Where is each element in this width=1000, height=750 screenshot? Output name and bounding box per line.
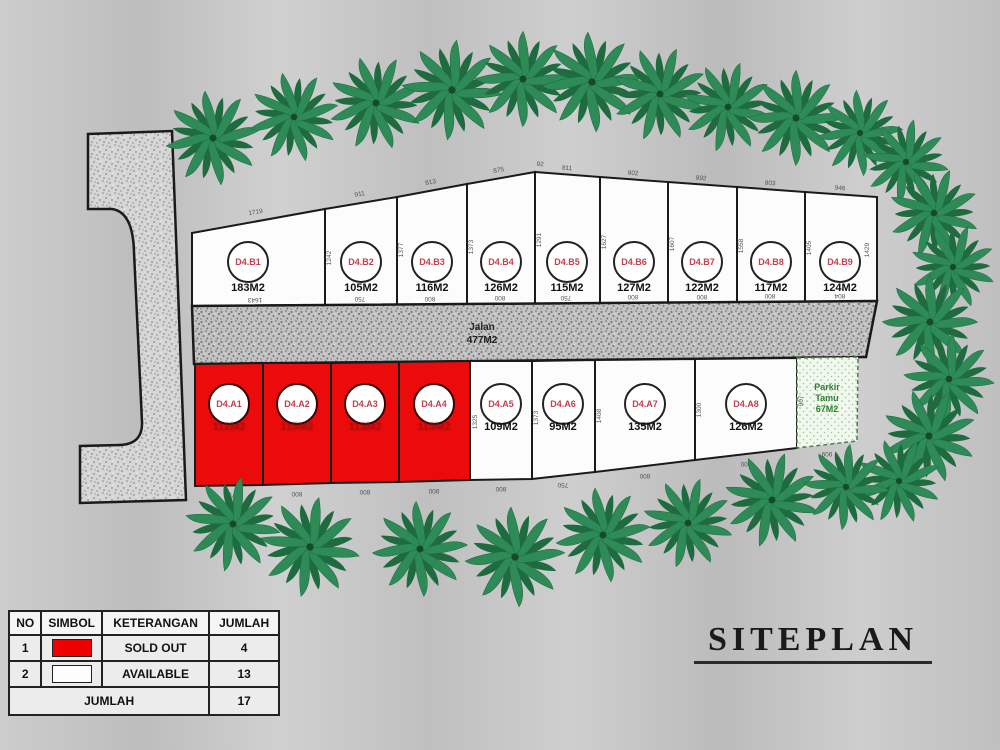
legend-header-jumlah: JUMLAH <box>209 611 279 635</box>
concrete-wall-shape <box>80 131 186 503</box>
available-color-swatch <box>52 665 92 683</box>
dimension-label: 800 <box>639 472 650 479</box>
road-label: Jalan <box>469 322 495 333</box>
parking-label-line2: Tamu <box>815 393 838 403</box>
plot-id: D4.B3 <box>419 257 445 267</box>
plot-d4b3: D4.B3 116M2 <box>397 184 467 305</box>
palm-tree-icon <box>794 435 898 539</box>
plot-d4b8: D4.B8 117M2 <box>737 187 805 302</box>
dimension-label: 813 <box>425 178 437 187</box>
palm-tree-icon <box>712 440 832 560</box>
dimension-label: 1607 <box>669 236 676 251</box>
plot-id: D4.B4 <box>488 257 514 267</box>
dimension-label: 800 <box>291 490 302 497</box>
plot-area: 113M2 <box>417 421 450 433</box>
plot-area: 127M2 <box>617 282 651 294</box>
dimension-label: 1408 <box>596 408 603 423</box>
plot-area: 116M2 <box>415 282 448 294</box>
plot-area: 115M2 <box>280 421 313 433</box>
plot-d4b5: D4.B5 115M2 <box>535 172 600 304</box>
parking-area-value: 67M2 <box>816 404 839 414</box>
legend-table: NO SIMBOL KETERANGAN JUMLAH 1 SOLD OUT 4… <box>8 610 280 716</box>
legend-total-row: JUMLAH 17 <box>9 687 279 715</box>
siteplan-title: SITEPLAN <box>694 622 932 664</box>
plot-d4a1: D4.A1 112M2 <box>195 363 263 486</box>
legend-total-label: JUMLAH <box>9 687 209 715</box>
dimension-label: 750 <box>560 294 571 301</box>
plot-area: 115M2 <box>550 282 583 294</box>
dimension-label: 800 <box>424 295 435 302</box>
plot-id: D4.B5 <box>554 257 580 267</box>
plot-d4b2: D4.B2 105M2 <box>325 197 397 305</box>
plot-area: 122M2 <box>685 282 719 294</box>
legend-row-jumlah: 13 <box>209 661 279 687</box>
legend-row-available: 2 AVAILABLE 13 <box>9 661 279 687</box>
plot-area: 183M2 <box>231 282 265 294</box>
dimension-label: 1377 <box>398 242 405 257</box>
dimension-label: 875 <box>493 166 505 175</box>
dimension-label: 1373 <box>468 239 475 254</box>
plot-d4a3: D4.A3 113M2 <box>331 362 399 483</box>
dimension-label: 946 <box>834 185 846 193</box>
palm-tree-icon <box>445 487 584 626</box>
plot-area: 113M2 <box>348 421 381 433</box>
dimension-label: 907 <box>798 395 805 406</box>
plot-area: 135M2 <box>628 421 662 433</box>
plot-id: D4.A5 <box>488 399 514 409</box>
palm-tree-icon <box>629 464 748 583</box>
legend-row-sold-out: 1 SOLD OUT 4 <box>9 635 279 661</box>
dimension-label: 92 <box>536 161 544 169</box>
dimension-label: 911 <box>354 190 366 199</box>
legend-row-keterangan: SOLD OUT <box>102 635 209 661</box>
plot-d4a8: D4.A8 126M2 <box>695 358 797 460</box>
legend-total-value: 17 <box>209 687 279 715</box>
legend-row-keterangan: AVAILABLE <box>102 661 209 687</box>
dimension-label: 1627 <box>601 234 608 249</box>
road-jalan: Jalan 477M2 <box>192 301 877 364</box>
plot-id: D4.A3 <box>352 399 378 409</box>
dimension-label: 1719 <box>248 208 264 217</box>
plot-area: 112M2 <box>212 421 245 433</box>
dimension-label: 1429 <box>864 242 871 257</box>
dimension-label: 802 <box>627 170 639 178</box>
plot-id: D4.B7 <box>689 257 715 267</box>
dimension-label: 892 <box>695 175 707 183</box>
plot-id: D4.B6 <box>621 257 647 267</box>
plot-area: 105M2 <box>344 282 378 294</box>
plot-id: D4.A4 <box>421 399 447 409</box>
dimension-label: 1643 <box>247 296 262 303</box>
plot-d4b7: D4.B7 122M2 <box>668 182 737 303</box>
dimension-label: 909 <box>821 450 832 457</box>
legend-row-no: 2 <box>9 661 41 687</box>
plot-d4a5: D4.A5 109M2 <box>470 361 532 480</box>
plot-area: 95M2 <box>549 421 577 433</box>
dimension-label: 800 <box>627 293 638 300</box>
dimension-label: 1373 <box>533 410 540 425</box>
plot-id: D4.A8 <box>733 399 759 409</box>
plot-id: D4.A2 <box>284 399 310 409</box>
palm-tree-icon <box>556 488 650 582</box>
dimension-label: 800 <box>428 487 439 494</box>
legend-row-no: 1 <box>9 635 41 661</box>
road-area: 477M2 <box>467 335 498 346</box>
dimension-label: 800 <box>764 292 775 299</box>
plot-d4b6: D4.B6 127M2 <box>600 177 668 303</box>
dimension-label: 804 <box>834 292 845 299</box>
dimension-label: 1300 <box>696 402 703 417</box>
plot-area: 109M2 <box>484 421 518 433</box>
dimension-label: 803 <box>764 180 776 188</box>
plot-id: D4.A1 <box>216 399 242 409</box>
dimension-label: 1405 <box>806 240 813 255</box>
legend-header-simbol: SIMBOL <box>41 611 101 635</box>
legend-header-keterangan: KETERANGAN <box>102 611 209 635</box>
dimension-label: 800 <box>495 485 506 492</box>
plot-d4b1: D4.B1 183M2 <box>192 209 325 306</box>
plot-id: D4.B9 <box>827 257 853 267</box>
legend-row-jumlah: 4 <box>209 635 279 661</box>
dimension-label: 1325 <box>472 414 479 429</box>
legend-header-no: NO <box>9 611 41 635</box>
plot-id: D4.A6 <box>550 399 576 409</box>
plot-area: 126M2 <box>729 421 763 433</box>
palm-tree-icon <box>369 498 471 600</box>
palm-tree-icon <box>166 91 260 185</box>
parking-label-line1: Parkir <box>814 382 840 392</box>
plot-d4b4: D4.B4 126M2 <box>467 172 535 304</box>
dimension-label: 811 <box>562 165 573 173</box>
palm-tree-icon <box>742 64 851 173</box>
plot-d4a7: D4.A7 135M2 <box>595 359 695 472</box>
dimension-label: 1558 <box>738 238 745 253</box>
dimension-label: 1291 <box>536 232 543 247</box>
dimension-label: 750 <box>354 295 365 302</box>
dimension-label: 800 <box>696 293 707 300</box>
guest-parking-area: Parkir Tamu 67M2 <box>797 357 858 448</box>
dimension-label: 800 <box>359 488 370 495</box>
plot-d4a6: D4.A6 95M2 <box>532 360 595 479</box>
dimension-label: 800 <box>494 294 505 301</box>
plot-id: D4.B1 <box>235 257 261 267</box>
plot-id: D4.A7 <box>632 399 658 409</box>
dimension-label: 1242 <box>326 250 333 265</box>
plot-id: D4.B8 <box>758 257 784 267</box>
plot-d4a4: D4.A4 113M2 <box>399 361 470 482</box>
plot-area: 126M2 <box>484 282 518 294</box>
plot-id: D4.B2 <box>348 257 374 267</box>
plot-d4a2: D4.A2 115M2 <box>263 363 331 485</box>
dimension-label: 750 <box>557 481 568 488</box>
sold-out-color-swatch <box>52 639 92 657</box>
